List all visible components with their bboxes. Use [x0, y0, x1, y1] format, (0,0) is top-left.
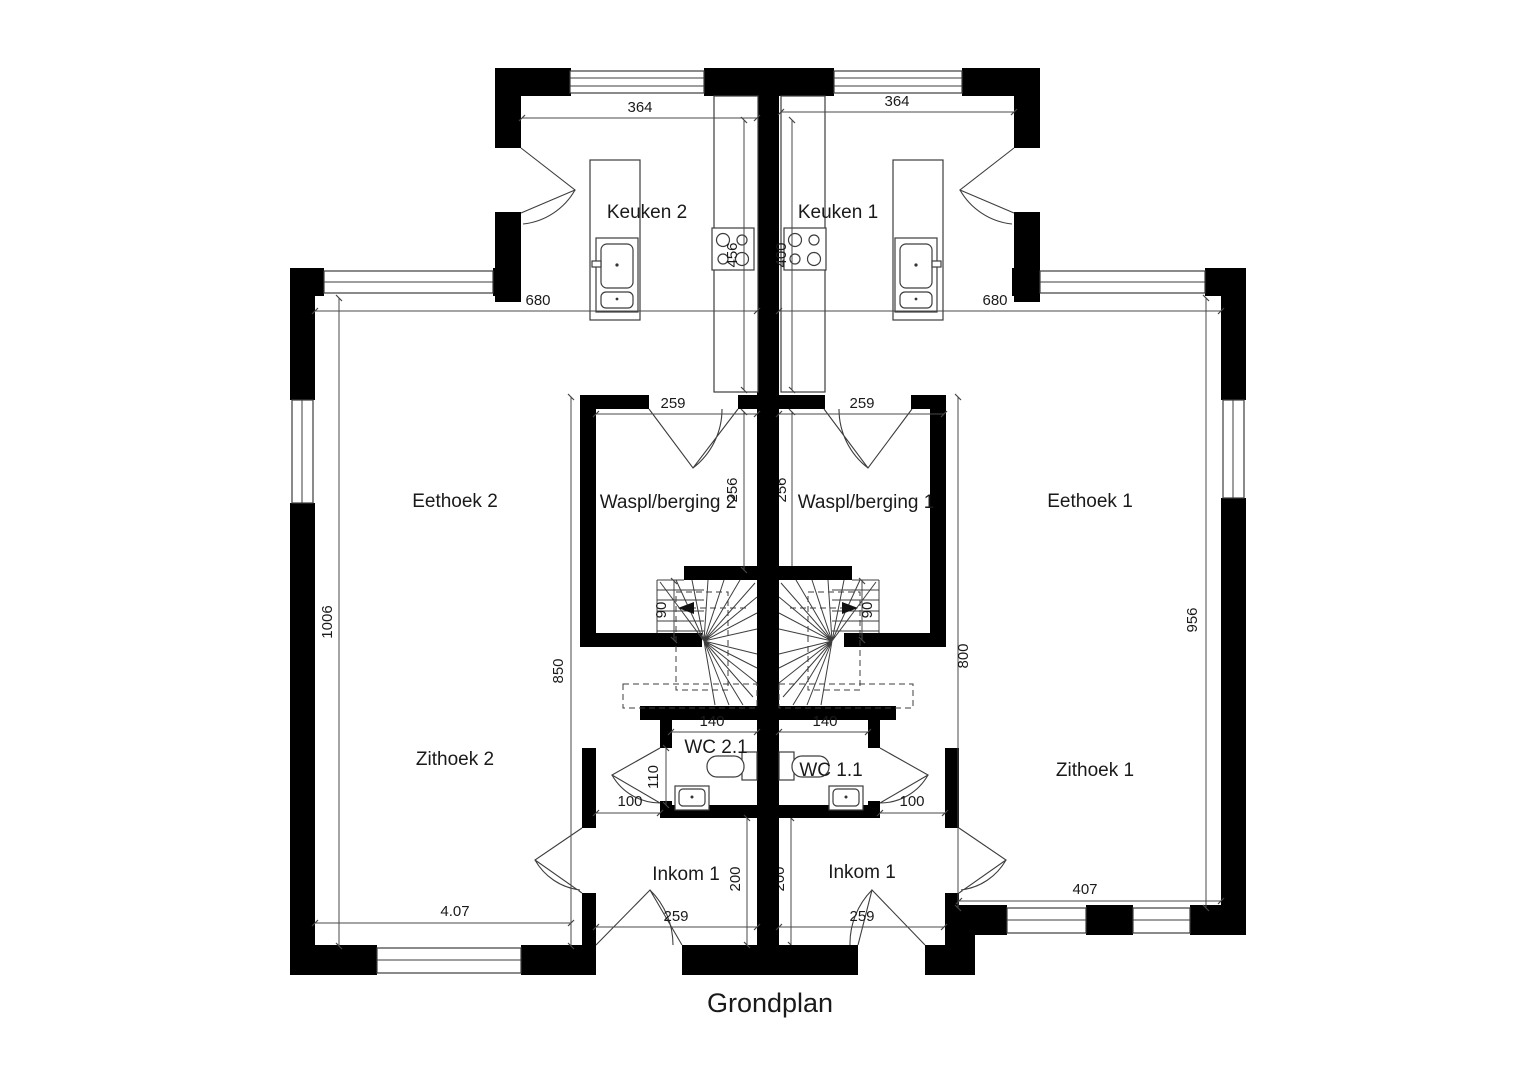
dim-wc1-width: 140 — [812, 713, 837, 730]
window — [1040, 271, 1205, 293]
dim-stair2-width: 90 — [653, 602, 670, 619]
door-arc — [649, 409, 738, 468]
room-label-waspl1: Waspl/berging 1 — [798, 492, 935, 513]
dim-inkom2-door: 259 — [663, 908, 688, 925]
dim-wall-left-height: 1006 — [319, 605, 336, 638]
dim-berging2-door: 259 — [660, 395, 685, 412]
door-arc — [960, 148, 1014, 224]
floor-plan-svg: 256 200 — [0, 0, 1529, 1080]
window — [834, 71, 962, 93]
dim-wc2-depth: 110 — [645, 765, 662, 789]
dim-zithoek1-width: 407 — [1072, 881, 1097, 898]
window — [570, 71, 704, 93]
room-label-waspl2: Waspl/berging 2 — [600, 492, 737, 513]
door-arc — [824, 409, 912, 468]
room-label-inkom1: Inkom 1 — [828, 862, 896, 883]
window — [292, 400, 313, 503]
dim-counter2-depth: 456 — [724, 242, 741, 267]
dim-living2-width: 680 — [525, 292, 550, 309]
dim-berging1-door: 259 — [849, 395, 874, 412]
floor-plan-page: 256 200 — [0, 0, 1529, 1080]
dim-stair1-width: 90 — [859, 602, 876, 619]
plan-title: Grondplan — [707, 988, 833, 1018]
hob — [784, 228, 826, 270]
wash-basin — [675, 786, 709, 810]
sink — [895, 238, 941, 312]
room-label-keuken2: Keuken 2 — [607, 202, 687, 223]
room-label-zithoek2: Zithoek 2 — [416, 749, 494, 770]
wash-basin — [829, 786, 863, 810]
window — [1007, 908, 1086, 933]
room-label-inkom2: Inkom 1 — [652, 864, 720, 885]
door-arc — [959, 828, 1006, 893]
dim-wall-right-height: 956 — [1184, 607, 1201, 632]
door-arc — [535, 828, 582, 893]
dim-inkom1-door: 259 — [849, 908, 874, 925]
dim-hall1-width: 100 — [899, 793, 924, 810]
room-label-wc2: WC 2.1 — [684, 737, 747, 758]
dim-inner-left-height: 850 — [550, 658, 567, 683]
dim-zithoek2-width: 4.07 — [440, 903, 469, 920]
dim-counter1-depth: 400 — [773, 242, 790, 267]
window — [377, 948, 521, 973]
room-label-zithoek1: Zithoek 1 — [1056, 760, 1134, 781]
dim-kitchen2-width: 364 — [627, 99, 652, 116]
window — [1223, 400, 1244, 498]
dim-hall2-width: 100 — [617, 793, 642, 810]
party-wall — [757, 68, 779, 975]
window — [1133, 908, 1190, 933]
dim-living1-width: 680 — [982, 292, 1007, 309]
sink — [592, 238, 638, 312]
dim-wc2-width: 140 — [699, 713, 724, 730]
dim-inner-right-height: 800 — [955, 643, 972, 668]
room-label-eethoek2: Eethoek 2 — [412, 491, 498, 512]
door-arc — [521, 148, 575, 224]
room-label-keuken1: Keuken 1 — [798, 202, 878, 223]
room-label-wc1: WC 1.1 — [799, 760, 862, 781]
walls — [290, 68, 1246, 975]
dim-kitchen1-width: 364 — [884, 93, 909, 110]
window — [324, 271, 493, 293]
dim-inkom2-depth: 200 — [727, 866, 744, 891]
room-label-eethoek1: Eethoek 1 — [1047, 491, 1133, 512]
